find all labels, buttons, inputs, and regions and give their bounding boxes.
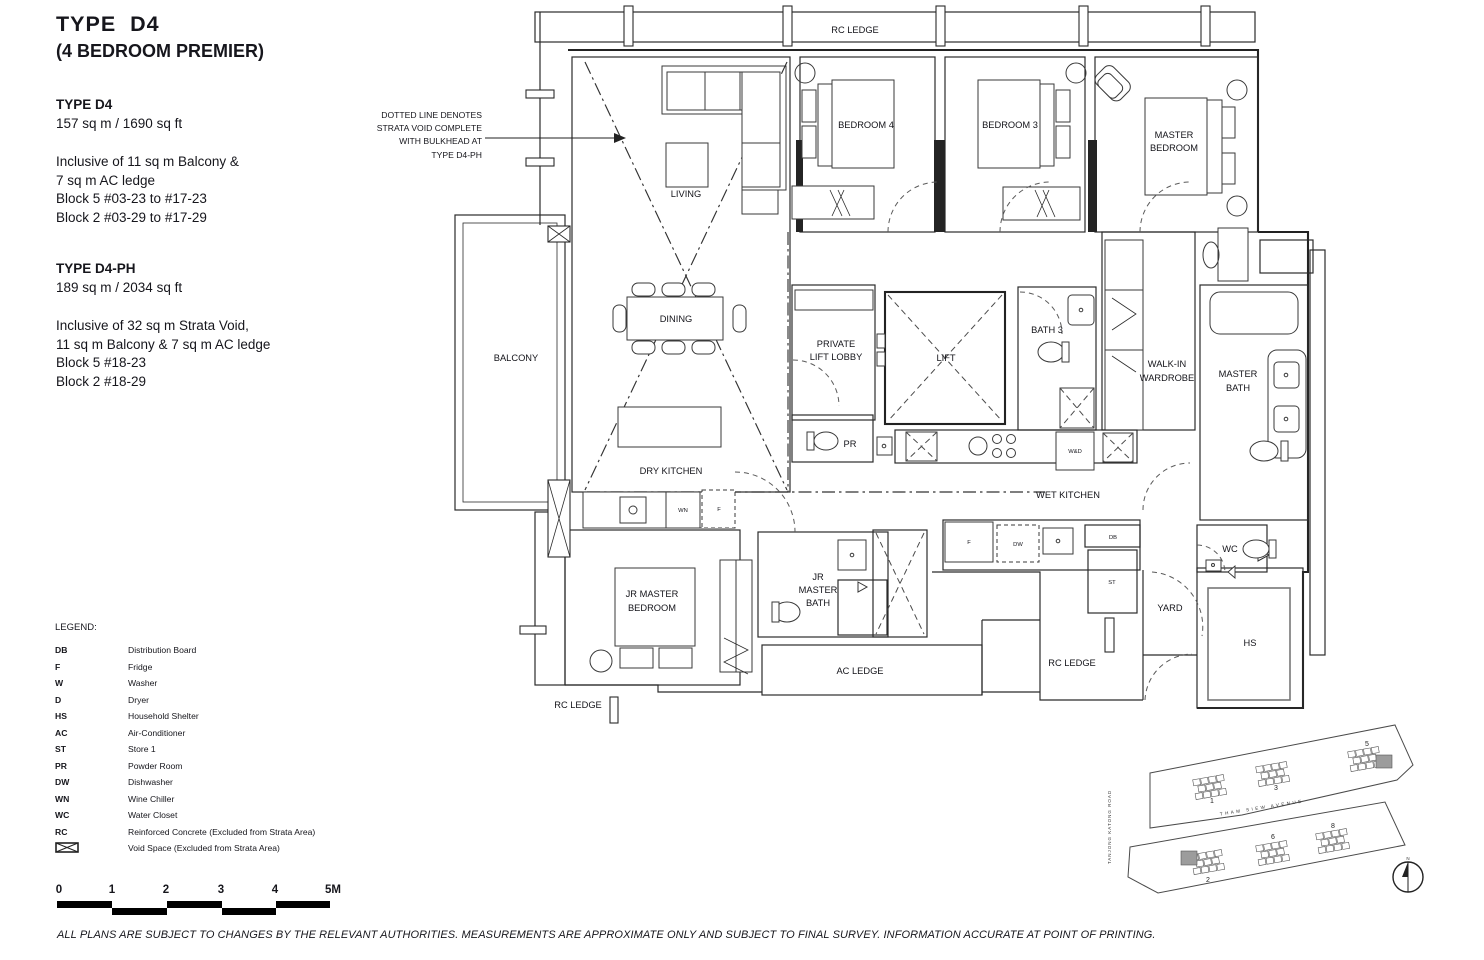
block-number-5: 5 (1365, 741, 1369, 748)
label-jr-bedroom-1: JR MASTER (626, 589, 679, 599)
legend-item: PRPowder Room (55, 758, 315, 775)
label-f-dry: F (717, 507, 721, 513)
side-table (1227, 80, 1247, 100)
block-number-8: 8 (1331, 823, 1335, 830)
dresser (1218, 228, 1248, 281)
label-wd: W&D (1068, 449, 1082, 455)
label-master-bath-2: BATH (1226, 383, 1250, 393)
label-jr-bath-2: MASTER (799, 585, 838, 595)
console (795, 290, 873, 310)
label-master-bedroom-2: BEDROOM (1150, 143, 1198, 153)
label-master-bedroom-1: MASTER (1155, 130, 1194, 140)
kitchen-island (618, 407, 721, 447)
legend-item: WWasher (55, 675, 315, 692)
legend-item: DDryer (55, 692, 315, 709)
label-ac-ledge: AC LEDGE (836, 666, 883, 676)
site-plan: 1 3 5 2 6 8 THAM SIEW AVENUE TANJONG KAT… (1107, 725, 1423, 893)
label-living: LIVING (671, 189, 701, 199)
legend-item: STStore 1 (55, 741, 315, 758)
label-wn: WN (678, 508, 688, 514)
street-tham-siew-avenue: THAM SIEW AVENUE (1220, 798, 1304, 816)
scale-tick: 4 (272, 884, 278, 896)
unit-info-type-d4: TYPE D4 157 sq m / 1690 sq ft Inclusive … (56, 97, 239, 227)
highlight-unit-block2 (1181, 851, 1197, 865)
label-pr: PR (844, 439, 857, 449)
label-hs: HS (1244, 638, 1257, 648)
scale-tick: 1 (109, 884, 115, 896)
label-db: DB (1109, 535, 1117, 541)
jr-bedroom-furniture (590, 560, 752, 674)
stool (1203, 242, 1219, 268)
info-line: Inclusive of 32 sq m Strata Void, (56, 317, 270, 336)
block-number-3: 3 (1274, 785, 1278, 792)
label-walkin-2: WARDROBE (1140, 373, 1194, 383)
section-heading: TYPE D4-PH (56, 261, 270, 276)
sink (1274, 362, 1299, 388)
label-dry-kitchen: DRY KITCHEN (640, 466, 703, 476)
legend: LEGEND: DBDistribution Board FFridge WWa… (55, 622, 315, 857)
label-wc: WC (1222, 544, 1238, 554)
scale-bar: 0 1 2 3 4 5M (57, 884, 357, 916)
side-table (590, 650, 612, 672)
legend-item: WCWater Closet (55, 807, 315, 824)
page-title: TYPE D4 (56, 12, 264, 37)
label-yard: YARD (1157, 603, 1182, 613)
section-area: 189 sq m / 2034 sq ft (56, 280, 270, 295)
side-table (1066, 63, 1086, 83)
legend-title: LEGEND: (55, 622, 315, 633)
bath3-furniture (1038, 295, 1094, 428)
label-bedroom3: BEDROOM 3 (982, 120, 1038, 130)
label-master-bath-1: MASTER (1219, 369, 1258, 379)
annotation-leader (485, 133, 626, 143)
block-number-1: 1 (1210, 798, 1214, 805)
legend-item: FFridge (55, 659, 315, 676)
scale-tick: 3 (218, 884, 224, 896)
label-st: ST (1108, 580, 1116, 586)
label-jr-bedroom-2: BEDROOM (628, 603, 676, 613)
info-line: Block 2 #03-29 to #17-29 (56, 209, 239, 228)
scale-tick: 0 (56, 884, 62, 896)
sink (620, 497, 646, 523)
toilet (1250, 441, 1278, 461)
street-tanjong-katong-road: TANJONG KATONG ROAD (1107, 790, 1112, 864)
label-rc-ledge-top: RC LEDGE (831, 25, 879, 35)
title-block: TYPE D4 (4 BEDROOM PREMIER) (56, 12, 264, 62)
void-space-symbol (55, 842, 79, 853)
side-table (1227, 196, 1247, 216)
info-line: 7 sq m AC ledge (56, 172, 239, 191)
toilet (1038, 342, 1064, 362)
toilet (814, 432, 838, 450)
label-rc-ledge-br: RC LEDGE (1048, 658, 1096, 668)
void-space-symbols (548, 226, 570, 557)
label-rc-ledge-bl: RC LEDGE (554, 700, 602, 710)
scale-bar-blocks (57, 901, 330, 916)
info-line: Block 2 #18-29 (56, 373, 270, 392)
scale-tick: 2 (163, 884, 169, 896)
walkin-wardrobe-furniture (1105, 240, 1143, 430)
legend-item: WNWine Chiller (55, 791, 315, 808)
small-sink (1206, 560, 1221, 571)
side-table (795, 63, 815, 83)
label-balcony: BALCONY (494, 353, 538, 363)
info-line: 11 sq m Balcony & 7 sq m AC ledge (56, 336, 270, 355)
label-lobby-2: LIFT LOBBY (810, 352, 863, 362)
hob-burner (969, 437, 987, 455)
block-number-6: 6 (1271, 834, 1275, 841)
label-walkin-1: WALK-IN (1148, 359, 1186, 369)
wardrobe-cabinet (1105, 240, 1143, 430)
label-f-wet: F (967, 540, 971, 546)
north-label: N (1406, 856, 1409, 861)
info-line: Block 5 #18-23 (56, 354, 270, 373)
sink (1068, 295, 1094, 325)
legend-item-void: Void Space (Excluded from Strata Area) (55, 840, 315, 857)
label-wet-kitchen: WET KITCHEN (1036, 490, 1100, 500)
small-sink (877, 437, 892, 455)
label-bedroom4: BEDROOM 4 (838, 120, 894, 130)
section-area: 157 sq m / 1690 sq ft (56, 116, 239, 131)
highlight-unit-block5 (1376, 755, 1392, 768)
legend-item: DWDishwasher (55, 774, 315, 791)
page-subtitle: (4 BEDROOM PREMIER) (56, 41, 264, 62)
bedroom4-furniture (792, 63, 894, 219)
bathtub (1210, 292, 1298, 334)
coffee-table (666, 143, 708, 187)
label-lobby-1: PRIVATE (817, 339, 855, 349)
label-dw: DW (1013, 542, 1023, 548)
info-line: Inclusive of 11 sq m Balcony & (56, 153, 239, 172)
bedroom3-furniture (978, 63, 1086, 220)
label-jr-bath-3: BATH (806, 598, 830, 608)
sink (838, 540, 866, 570)
legend-item: DBDistribution Board (55, 642, 315, 659)
info-line: Block 5 #03-23 to #17-23 (56, 190, 239, 209)
toilet (1243, 540, 1269, 558)
floor-plan: RC LEDGE (440, 0, 1484, 924)
unit-info-type-d4-ph: TYPE D4-PH 189 sq m / 2034 sq ft Inclusi… (56, 261, 270, 391)
label-dining: DINING (660, 314, 693, 324)
sink (1274, 406, 1299, 432)
block-number-2: 2 (1206, 877, 1210, 884)
label-jr-bath-1: JR (812, 572, 824, 582)
wardrobe (1003, 187, 1080, 220)
legend-item: ACAir-Conditioner (55, 725, 315, 742)
armchair (1092, 63, 1133, 104)
disclaimer-text: ALL PLANS ARE SUBJECT TO CHANGES BY THE … (57, 929, 1156, 941)
north-arrow-icon: N (1393, 856, 1423, 892)
legend-item: RCReinforced Concrete (Excluded from Str… (55, 824, 315, 841)
sink2 (1043, 528, 1073, 554)
label-lift: LIFT (936, 353, 955, 363)
section-heading: TYPE D4 (56, 97, 239, 112)
legend-item: HSHousehold Shelter (55, 708, 315, 725)
label-bath3: BATH 3 (1031, 325, 1063, 335)
scale-tick: 5M (325, 884, 341, 896)
master-bath-furniture (1210, 292, 1306, 561)
